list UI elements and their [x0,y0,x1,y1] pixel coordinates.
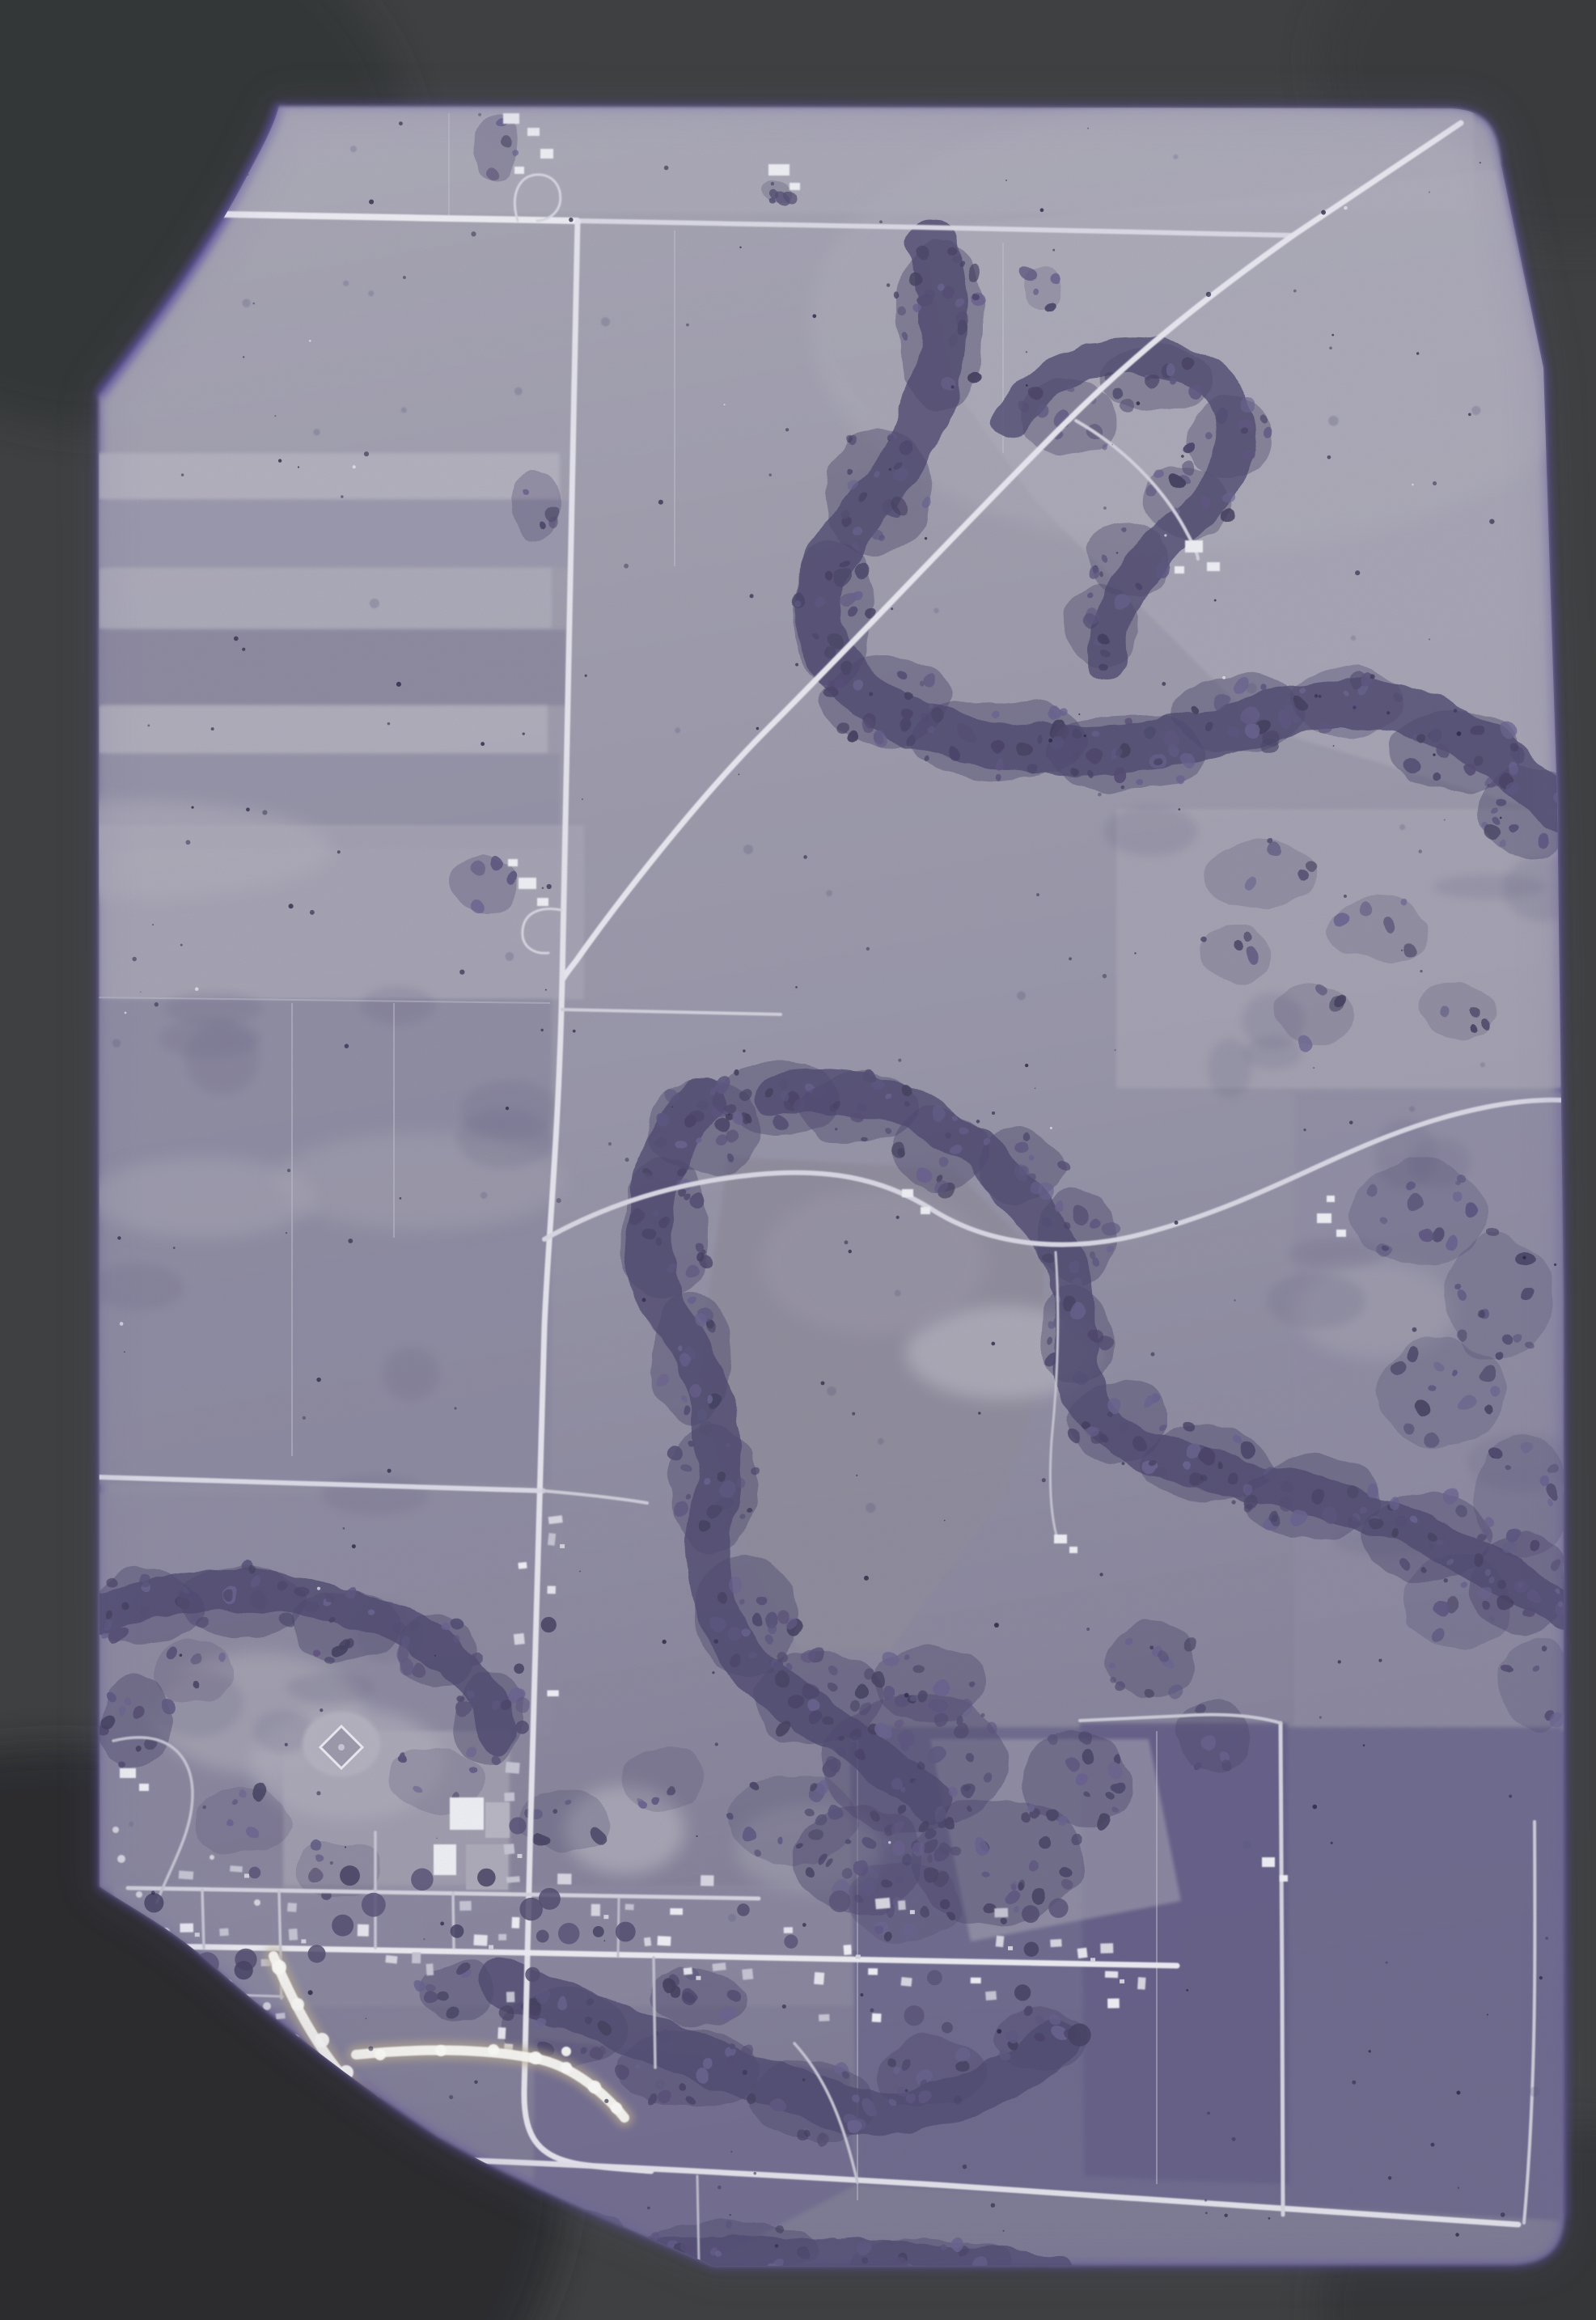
aerial-photo-svg [0,0,1596,2320]
photo-content [0,89,1596,2289]
film-grain [81,89,1585,2289]
aerial-photo-slide [0,0,1596,2320]
